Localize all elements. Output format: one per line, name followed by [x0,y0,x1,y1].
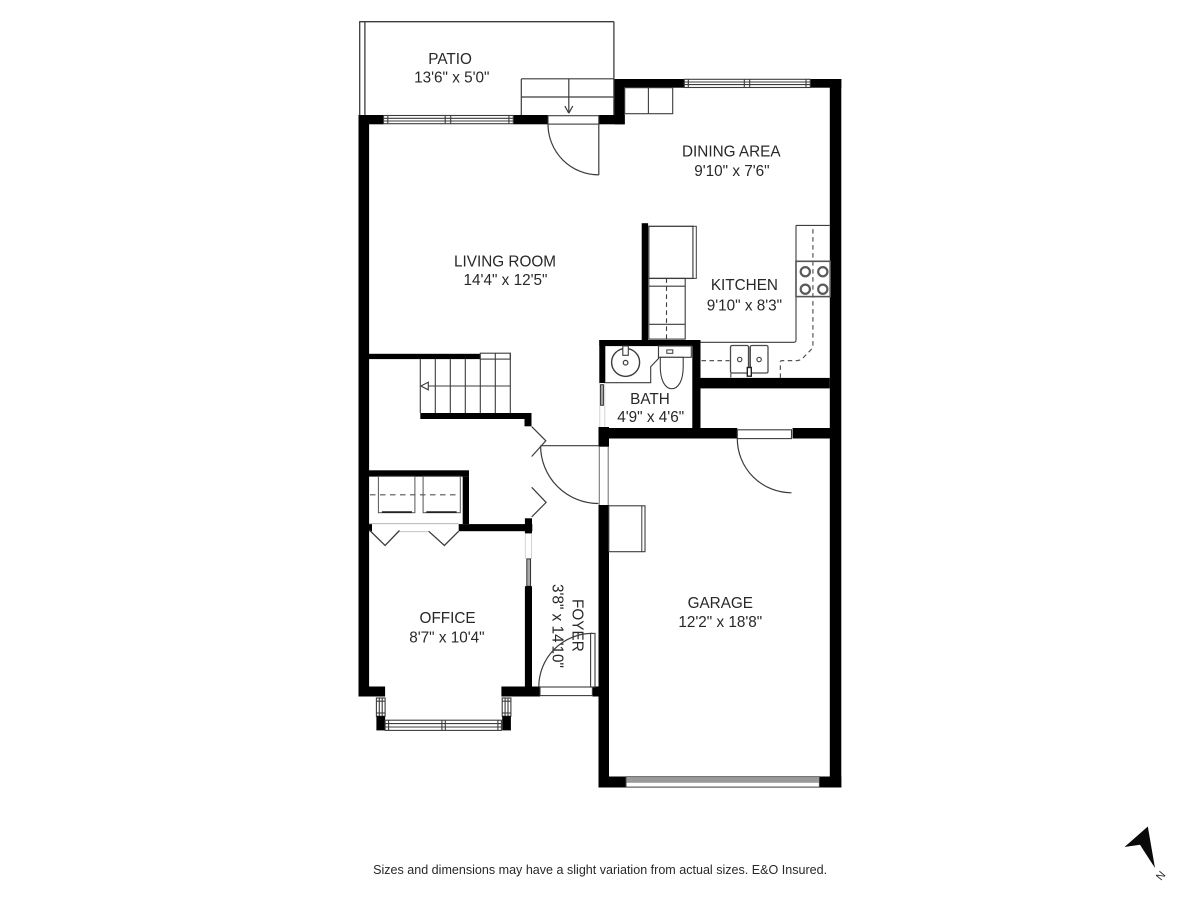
svg-text:3'8" x 14'10": 3'8" x 14'10" [548,584,565,668]
svg-text:OFFICE: OFFICE [420,610,476,627]
svg-text:GARAGE: GARAGE [688,595,753,612]
svg-text:LIVING ROOM: LIVING ROOM [454,253,556,270]
svg-text:8'7" x 10'4": 8'7" x 10'4" [409,629,484,646]
svg-text:PATIO: PATIO [428,51,472,68]
svg-text:14'4" x 12'5": 14'4" x 12'5" [464,272,548,289]
svg-text:N: N [1154,869,1168,883]
svg-text:DINING AREA: DINING AREA [682,144,781,161]
svg-text:Sizes and dimensions may have: Sizes and dimensions may have a slight v… [373,863,827,877]
svg-text:BATH: BATH [630,391,670,408]
svg-text:4'9" x 4'6": 4'9" x 4'6" [617,409,684,426]
svg-text:FOYER: FOYER [568,599,585,652]
svg-text:9'10" x 7'6": 9'10" x 7'6" [694,163,769,180]
svg-text:KITCHEN: KITCHEN [711,277,778,294]
svg-text:12'2" x 18'8": 12'2" x 18'8" [678,614,762,631]
svg-text:13'6" x 5'0": 13'6" x 5'0" [414,70,489,87]
svg-text:9'10" x 8'3": 9'10" x 8'3" [707,298,782,315]
